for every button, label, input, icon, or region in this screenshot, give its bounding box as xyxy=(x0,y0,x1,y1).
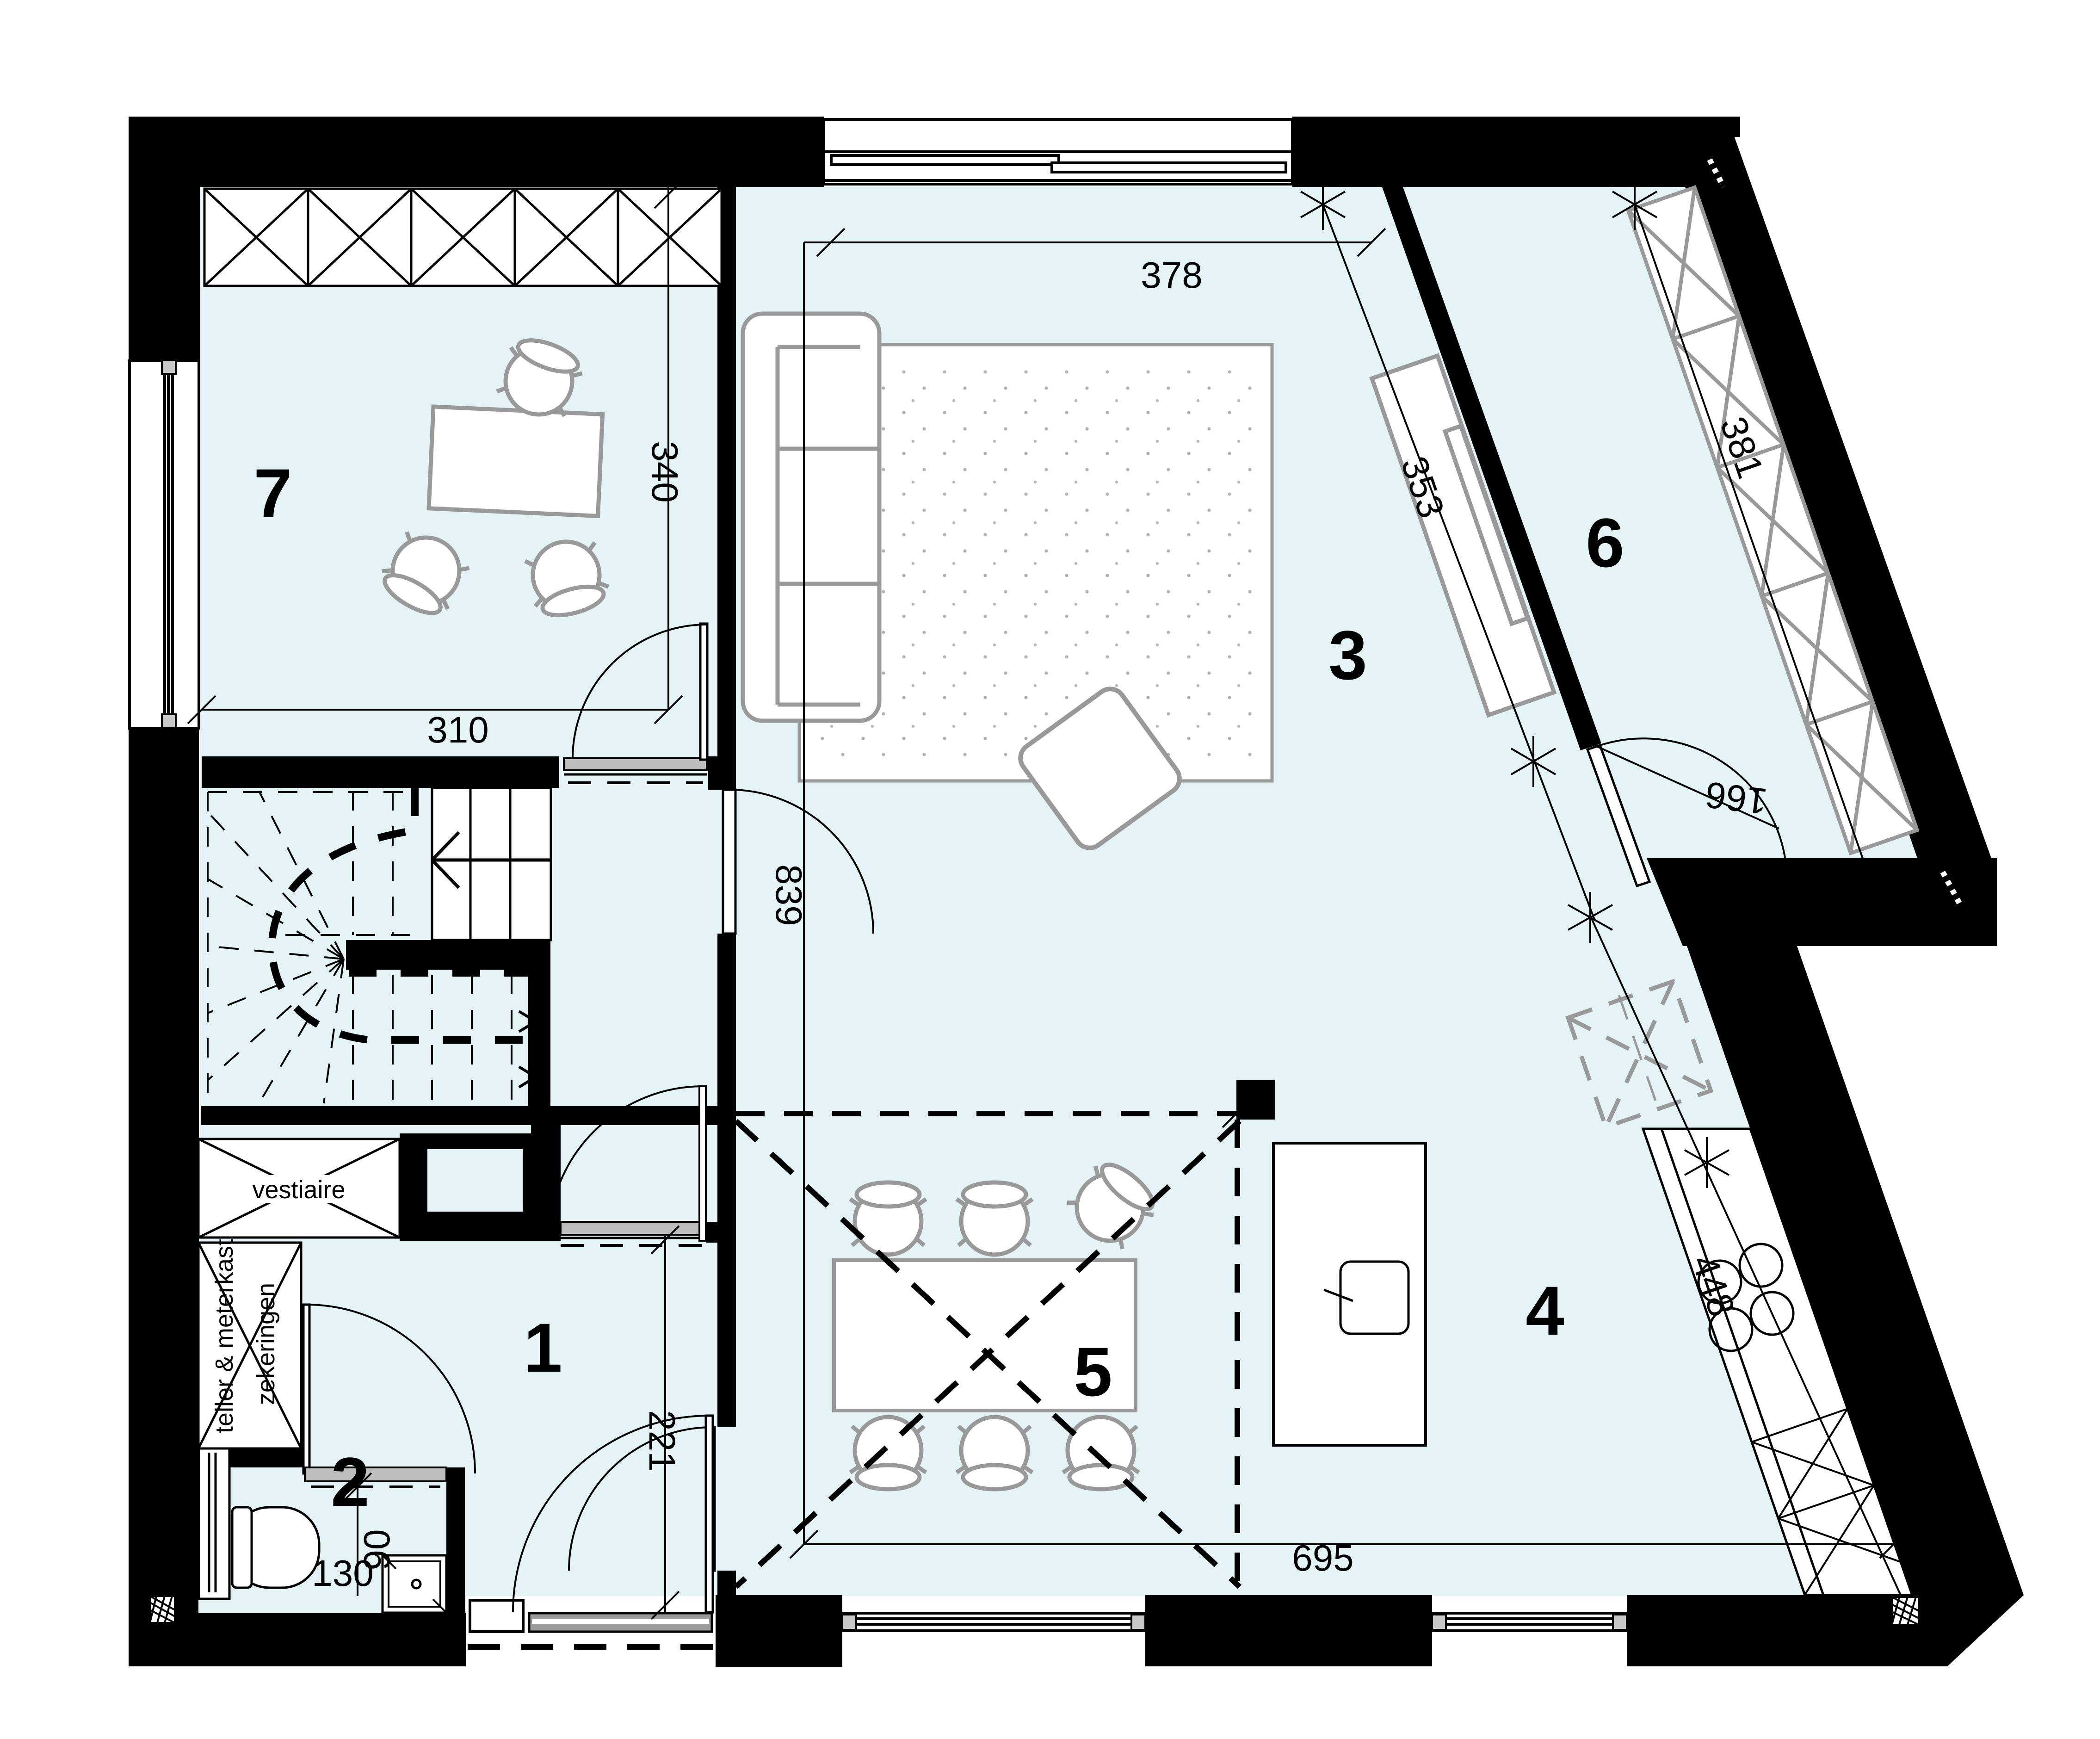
svg-text:teller & meterkast: teller & meterkast xyxy=(210,1239,238,1433)
svg-text:378: 378 xyxy=(1141,254,1202,296)
svg-text:6: 6 xyxy=(1586,504,1624,582)
svg-text:1: 1 xyxy=(524,1309,562,1386)
svg-text:695: 695 xyxy=(1292,1537,1353,1578)
svg-text:839: 839 xyxy=(768,864,809,926)
svg-text:zekeringen: zekeringen xyxy=(252,1283,280,1405)
svg-text:166: 166 xyxy=(1703,774,1769,823)
svg-text:221: 221 xyxy=(642,1410,683,1472)
svg-text:310: 310 xyxy=(427,709,488,750)
svg-text:vestiaire: vestiaire xyxy=(252,1176,345,1204)
svg-text:4: 4 xyxy=(1526,1272,1564,1349)
svg-text:340: 340 xyxy=(644,441,686,502)
svg-text:7: 7 xyxy=(253,454,292,532)
svg-text:5: 5 xyxy=(1074,1333,1112,1411)
svg-text:2: 2 xyxy=(331,1443,369,1521)
svg-text:3: 3 xyxy=(1328,616,1367,694)
svg-text:130: 130 xyxy=(312,1553,373,1594)
